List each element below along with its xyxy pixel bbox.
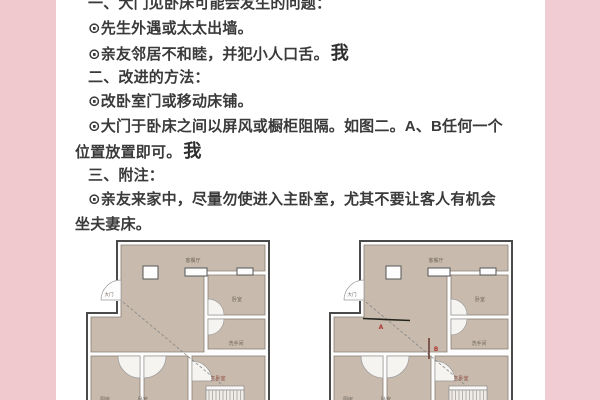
- article-line: 二、改进的方法：: [75, 66, 539, 91]
- marker-a-label: A: [379, 324, 384, 331]
- right-pink-band: [545, 0, 600, 400]
- master-label: 主卧室: [210, 375, 225, 382]
- article-line: ⊙改卧室门或移动床铺。: [75, 90, 539, 115]
- line-text: 一、大门见卧床可能会发生的问题：: [88, 0, 331, 12]
- second-room-label: 卧室: [138, 396, 148, 400]
- bedroom-label: 卧室: [475, 296, 485, 303]
- article-text-block: 一、大门见卧床可能会发生的问题： ⊙先生外遇或太太出墙。 ⊙亲友邻居不和睦，并犯…: [75, 0, 539, 237]
- article-line: ⊙大门于卧床之间以屏风或橱柜阻隔。如图二。A、B任何一个: [75, 115, 539, 140]
- bedroom-label: 卧室: [232, 296, 242, 303]
- wall-pier: [428, 268, 450, 276]
- left-pink-band: [0, 0, 56, 400]
- wall-pier: [480, 268, 496, 275]
- living-label: 客餐厅: [185, 257, 200, 264]
- line-text: 坐夫妻床。: [75, 216, 151, 233]
- floor-plan-1: 大门 客餐厅 卧室 洗手间 主卧室 厨房 卧室: [85, 238, 273, 400]
- bed-headboard-icon: [449, 386, 487, 390]
- bathroom-label: 洗手间: [471, 340, 486, 347]
- kitchen-label: 厨房: [343, 396, 353, 400]
- wall-pier: [386, 266, 401, 279]
- entrance-label: 大门: [105, 291, 114, 298]
- floor-plan-1-drawing: 大门 客餐厅 卧室 洗手间 主卧室 厨房 卧室: [85, 238, 273, 400]
- article-page: 一、大门见卧床可能会发生的问题： ⊙先生外遇或太太出墙。 ⊙亲友邻居不和睦，并犯…: [0, 0, 600, 400]
- watermark-glyph: 我: [331, 43, 349, 63]
- master-label: 主卧室: [453, 375, 468, 382]
- wall-pier: [237, 268, 253, 275]
- article-line: ⊙亲友邻居不和睦，并犯小人口舌。我: [75, 41, 539, 66]
- floor-plan-2-drawing: A B 大门 客餐厅 卧室 洗手间 主卧室 厨房 卧室: [328, 238, 516, 400]
- line-text: ⊙大门于卧床之间以屏风或橱柜阻隔。如图二。A、B任何一个: [88, 118, 503, 135]
- article-line: ⊙先生外遇或太太出墙。: [75, 17, 539, 42]
- line-text: 位置放置即可。: [75, 144, 181, 161]
- line-text: ⊙改卧室门或移动床铺。: [88, 93, 253, 110]
- article-line: ⊙亲友来家中，尽量勿使进入主卧室，尤其不要让客人有机会: [75, 188, 539, 213]
- bathroom-label: 洗手间: [228, 340, 243, 347]
- marker-b-label: B: [434, 346, 439, 353]
- wall-pier: [185, 268, 207, 276]
- line-text: 二、改进的方法：: [88, 69, 210, 86]
- watermark-glyph: 我: [183, 141, 201, 161]
- bed-icon: [449, 390, 487, 400]
- floor-plan-2: A B 大门 客餐厅 卧室 洗手间 主卧室 厨房 卧室: [328, 238, 516, 400]
- line-text: 三、附注：: [88, 167, 164, 184]
- article-line: 一、大门见卧床可能会发生的问题：: [75, 0, 539, 17]
- article-line: 三、附注：: [75, 164, 539, 189]
- second-room-label: 卧室: [381, 396, 391, 400]
- wall-pier: [143, 266, 158, 279]
- article-line: 坐夫妻床。: [75, 213, 539, 238]
- line-text: ⊙亲友来家中，尽量勿使进入主卧室，尤其不要让客人有机会: [88, 191, 496, 208]
- line-text: ⊙亲友邻居不和睦，并犯小人口舌。: [88, 46, 329, 63]
- bed-icon: [206, 390, 244, 400]
- article-line: 位置放置即可。我: [75, 139, 539, 164]
- kitchen-label: 厨房: [100, 396, 110, 400]
- entrance-label: 大门: [348, 291, 357, 298]
- line-text: ⊙先生外遇或太太出墙。: [88, 20, 253, 37]
- bed-headboard-icon: [206, 386, 244, 390]
- living-label: 客餐厅: [428, 257, 443, 264]
